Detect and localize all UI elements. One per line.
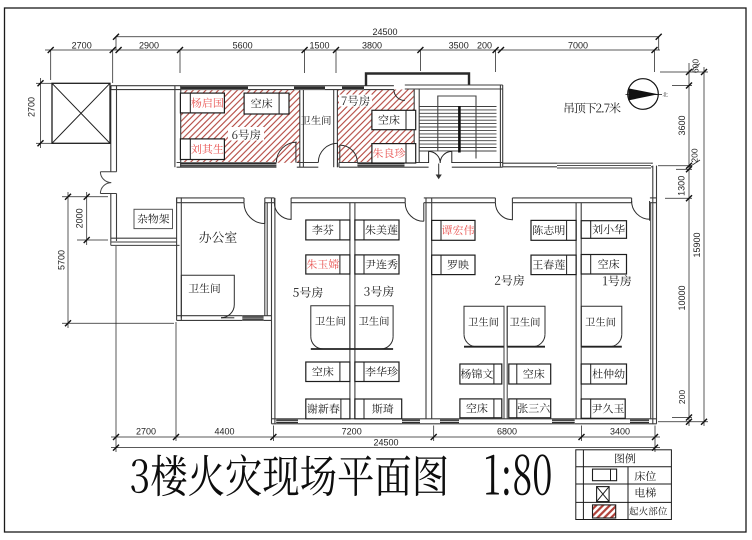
svg-text:2700: 2700 [72, 40, 92, 50]
svg-text:24500: 24500 [373, 438, 398, 448]
svg-text:200: 200 [477, 40, 492, 50]
svg-text:24500: 24500 [372, 27, 397, 37]
svg-text:200: 200 [690, 148, 700, 162]
svg-text:1500: 1500 [309, 40, 329, 50]
svg-text:7000: 7000 [568, 40, 588, 50]
svg-text:15900: 15900 [692, 232, 702, 257]
svg-text:600: 600 [691, 59, 701, 73]
svg-text:6800: 6800 [497, 426, 517, 436]
svg-text:2900: 2900 [139, 40, 159, 50]
svg-text:1300: 1300 [677, 176, 687, 196]
svg-text:7200: 7200 [342, 426, 362, 436]
svg-text:3800: 3800 [362, 40, 382, 50]
svg-text:3600: 3600 [677, 115, 687, 135]
svg-text:200: 200 [677, 390, 687, 404]
svg-text:5700: 5700 [57, 250, 67, 270]
svg-text:10000: 10000 [677, 285, 687, 310]
svg-text:2700: 2700 [27, 97, 37, 117]
svg-text:2000: 2000 [75, 208, 85, 228]
svg-text:3400: 3400 [610, 426, 630, 436]
svg-text:5600: 5600 [233, 40, 253, 50]
svg-text:3500: 3500 [449, 40, 469, 50]
svg-text:2700: 2700 [136, 426, 156, 436]
svg-text:4400: 4400 [214, 426, 234, 436]
